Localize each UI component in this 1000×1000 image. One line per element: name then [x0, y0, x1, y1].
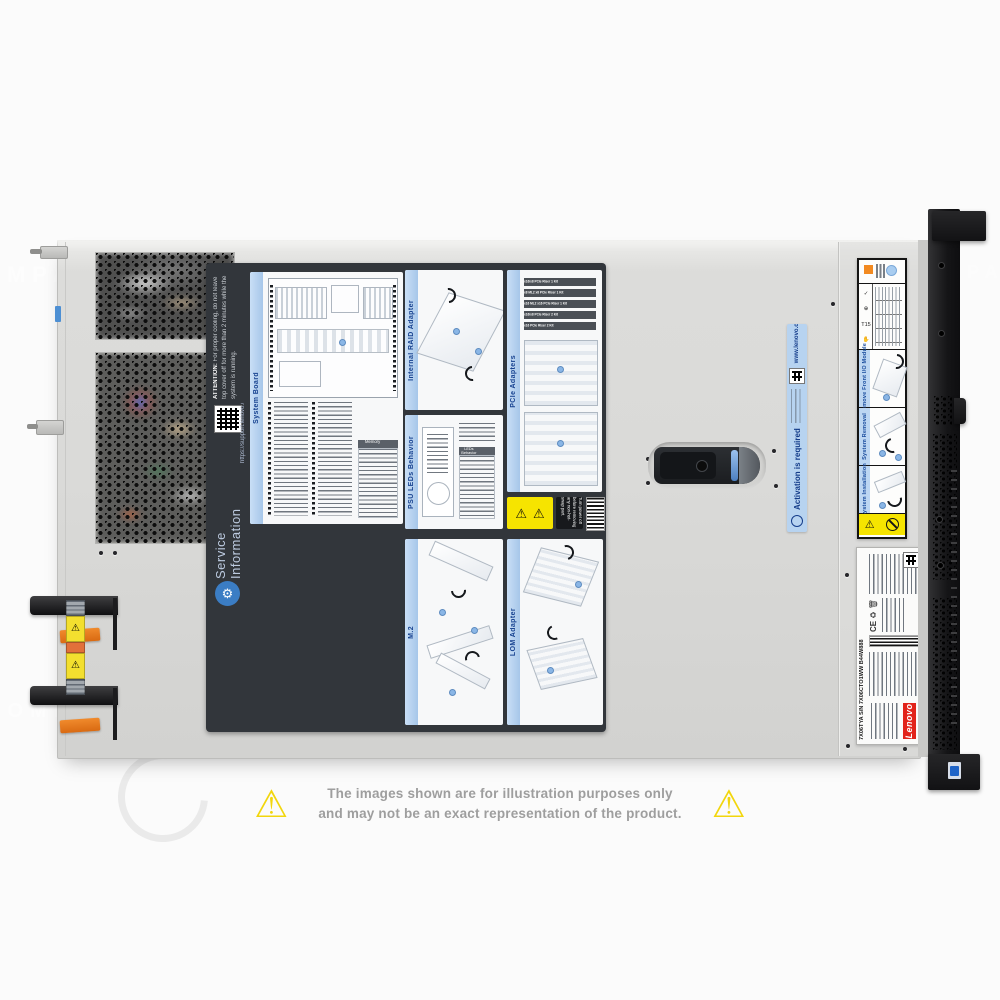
warning-triangle-icon: ⚠ [712, 785, 746, 823]
psu-fan-sketch [427, 482, 450, 505]
model-serial-text: 7X06TYA S/N 7X06CTO1WW B44W888 [858, 622, 864, 740]
activation-fine-print [791, 389, 803, 423]
touch-point-dot [895, 454, 902, 461]
cover-release-latch[interactable] [654, 447, 760, 484]
activation-qr-code [789, 368, 805, 384]
service-title-line2: Information [228, 439, 243, 579]
instruction-panel-system-installation: System Installation [859, 466, 905, 514]
instruction-panel-title: System Removal [862, 413, 868, 460]
blue-circle-legend-icon [886, 265, 897, 276]
touch-point-dot [557, 366, 564, 373]
rear-latch-pin [30, 249, 42, 254]
callout-ticks [270, 285, 273, 391]
panel-lom-adapter: LOM Adapter [507, 539, 603, 725]
psu-warning-label-strip: ⚠ ⚠ [66, 600, 85, 695]
disclaimer-line1: The images shown are for illustration pu… [318, 784, 681, 804]
instruction-panel-system-removal: System Removal [859, 408, 905, 466]
touch-point-dot [339, 339, 346, 346]
latch-blue-accent [731, 450, 738, 481]
psu-edge [113, 688, 117, 740]
bezel-screw [938, 330, 945, 337]
lift-warning-strip: ⚠ [859, 514, 905, 535]
cover-seam-highlight [839, 242, 840, 756]
memory-table-header: Memory [358, 440, 398, 448]
dimm-slots-sketch [363, 287, 393, 319]
panel-header: PSU LEDs Behavior [405, 415, 418, 529]
prohibition-icon [886, 518, 899, 531]
panel-header: M.2 [405, 539, 418, 725]
psu-led-table-header: LEDs Behavior [459, 447, 495, 455]
psu-led-table: LEDs Behavior [459, 447, 495, 519]
panel-psu-leds: PSU LEDs Behavior LEDs Behavior [405, 415, 503, 529]
screw-hole [846, 744, 850, 748]
psu-warning-label-orange [66, 642, 85, 653]
psu-edge [113, 598, 117, 650]
panel-internal-raid: Internal RAID Adapter [405, 270, 503, 410]
riser-diagram [524, 412, 598, 486]
psu-led-table-rows [459, 455, 495, 519]
touch-point-dot [883, 394, 890, 401]
panel-header: System Board [250, 272, 263, 524]
instruction-panel-header: Remove Front I/O Module [859, 350, 870, 407]
riser-kit-item: x16 ML2 x16 PCIe Riser 1 Kit [524, 300, 596, 308]
bezel-latch-bump[interactable] [954, 398, 966, 424]
arrow-icon [884, 489, 904, 509]
psu-release-tab-orange [60, 718, 101, 734]
psu-warning-label-yellow: ⚠ [66, 616, 85, 642]
panel-title: PCIe Adapters [510, 355, 517, 408]
warning-note-black: Turn power off before removing any non-h… [556, 497, 583, 529]
legend-ticks [312, 402, 315, 516]
instruction-panel-title: Remove Front I/O Module [862, 343, 868, 414]
system-sketch [873, 412, 906, 438]
psu-warning-label-yellow: ⚠ [66, 653, 85, 679]
disclaimer-banner: ⚠ The images shown are for illustration … [0, 784, 1000, 825]
screw-hole [99, 551, 103, 555]
rear-blue-clip [55, 306, 61, 322]
regulatory-fine-print [869, 652, 919, 696]
serial-barcode [869, 635, 919, 647]
touch-point-dot [453, 328, 460, 335]
rack-ear-top [932, 211, 986, 241]
riser-kit-item: x16/x8 PCIe Riser 2 Kit [524, 311, 596, 319]
instruction-panel-header: System Removal [859, 408, 870, 465]
service-tools-icon: ⚙ [215, 581, 240, 606]
latch-lock-screw[interactable] [696, 460, 708, 472]
torx-icon: T15 [861, 322, 870, 328]
touch-point-dot [557, 440, 564, 447]
arrow-icon [448, 580, 469, 601]
psu-unit-sketch [422, 427, 454, 517]
bezel-ribs [951, 470, 957, 730]
attention-title: ATTENTION: [213, 363, 219, 399]
orange-square-legend-icon [864, 265, 873, 274]
rear-latch-pin [27, 424, 38, 429]
attention-note: ATTENTION: For proper cooling, do not le… [212, 271, 246, 399]
pcie-slots-sketch [277, 329, 389, 353]
touch-point-dot [547, 667, 554, 674]
system-sketch [874, 471, 906, 493]
xeon-badge [948, 762, 961, 779]
system-board-diagram [268, 278, 398, 398]
touch-point-dot [475, 348, 482, 355]
touch-point-dot [471, 627, 478, 634]
psu-sketch-text [427, 434, 448, 474]
front-io-instruction-label: ✓ ⊕ T15 ✋ Remove Front I/O Module System… [857, 258, 907, 539]
m2-module-sketch [429, 541, 494, 582]
screw-hole [113, 551, 117, 555]
touch-point-dot [575, 581, 582, 588]
instruction-panel-remove-front-io: Remove Front I/O Module [859, 350, 905, 408]
service-info-title: Service Information [208, 439, 248, 579]
legend-ticks [268, 402, 271, 516]
riser-diagram [524, 340, 598, 406]
label-barcode [586, 497, 605, 531]
rear-latch-tab [40, 246, 68, 259]
panel-title: M.2 [408, 626, 415, 639]
warning-label-yellow: ⚠ ⚠ [507, 497, 553, 529]
warning-triangle-icon: ⚠ [254, 785, 288, 823]
touch-point-dot [879, 502, 886, 509]
service-qr-code [214, 405, 242, 433]
table-divider [872, 284, 873, 349]
screw-hole [646, 481, 650, 485]
chassis-front-edge [918, 240, 928, 757]
panel-title: PSU LEDs Behavior [408, 436, 415, 509]
checkmark-icon: ✓ [864, 291, 869, 297]
panel-title: System Board [253, 372, 260, 424]
screw-hole [831, 302, 835, 306]
activation-title: Activation is required [793, 428, 802, 510]
memory-table-rows [358, 448, 398, 518]
psu-led-notes [459, 423, 495, 443]
touch-point-dot [449, 689, 456, 696]
regulatory-fine-print [871, 703, 899, 739]
panel-system-board: System Board Memory [250, 272, 403, 524]
bezel-screw [938, 262, 945, 269]
panel-title: LOM Adapter [510, 608, 517, 656]
bezel-screw [937, 562, 944, 569]
bezel-perforations [934, 396, 952, 426]
panel-pcie-adapters: PCIe Adapters x16/x8 PCIe Riser 1 Kit x8… [507, 270, 602, 492]
warning-triangle-icon: ⚠ [515, 507, 527, 520]
legend-text-column [274, 402, 308, 516]
certification-marks: CE ♻ 🗑 [869, 598, 919, 632]
bezel-screw [936, 516, 943, 523]
instruction-panel-title: System Installation [862, 463, 868, 517]
lom-adapter-sketch [526, 638, 597, 690]
memory-table: Memory [358, 440, 398, 518]
screw-hole [772, 449, 776, 453]
psu-info-label [66, 679, 85, 695]
screw-hole [903, 747, 907, 751]
crossed-bin-icon: 🗑 [869, 599, 878, 609]
activation-required-label: Activation is required www.lenovo.com/ac… [787, 324, 807, 532]
screw-icon: ⊕ [864, 306, 869, 312]
screw-hole [774, 484, 778, 488]
component-sketch [279, 361, 321, 387]
activation-url: www.lenovo.com/activate [794, 324, 800, 363]
riser-kit-item: x16/x8 PCIe Riser 1 Kit [524, 278, 596, 286]
screw-table-section: ✓ ⊕ T15 ✋ [859, 284, 905, 350]
m2-module-sketch [426, 625, 493, 659]
callout-ticks [393, 285, 396, 391]
panel-header: PCIe Adapters [507, 270, 520, 492]
rear-latch-tab [36, 420, 64, 435]
legend-section [859, 260, 905, 284]
touch-point-dot [439, 609, 446, 616]
lenovo-logo: Lenovo [903, 703, 916, 739]
ce-mark: CE [869, 621, 878, 632]
panel-header: Internal RAID Adapter [405, 270, 418, 410]
instruction-panel-header: System Installation [859, 466, 870, 513]
xeon-badge-inner [950, 766, 959, 776]
psu-info-label [66, 600, 85, 616]
table-description-column [875, 287, 902, 346]
riser-kit-item: x16 PCIe Riser 2 Kit [524, 322, 596, 330]
activation-strip-content: Activation is required www.lenovo.com/ac… [787, 324, 807, 532]
warning-note-text: Turn power off before removing any non-h… [556, 497, 583, 528]
service-information-label: ATTENTION: For proper cooling, do not le… [206, 263, 606, 732]
disclaimer-text: The images shown are for illustration pu… [318, 784, 681, 825]
panel-m2: M.2 [405, 539, 503, 725]
m2-module-sketch [435, 653, 490, 690]
cert-fine-print [882, 598, 904, 632]
product-photo: COMPAN COMPAN COMPAN COMPAN COMPAN COMPA… [0, 0, 1000, 1000]
warning-triangle-icon: ⚠ [533, 507, 545, 520]
recycle-icon: ♻ [869, 611, 878, 618]
cpu-socket-sketch [331, 285, 359, 313]
touch-point-dot [879, 450, 886, 457]
dimm-slots-sketch [275, 287, 327, 319]
clock-icon [791, 515, 803, 527]
panel-title: Internal RAID Adapter [408, 300, 415, 381]
regulatory-qr-code [903, 552, 919, 568]
riser-kit-item: x8 ML2 x8 PCIe Riser 1 Kit [524, 289, 596, 297]
table-icon-column: ✓ ⊕ T15 ✋ [860, 286, 872, 348]
screw-hole [845, 573, 849, 577]
panel-header: LOM Adapter [507, 539, 520, 725]
model-serial-line: 7X06TYA S/N 7X06CTO1WW B44W888 [858, 550, 866, 740]
legend-text [877, 264, 885, 278]
warning-triangle-icon: ⚠ [865, 518, 875, 531]
service-title-line1: Service [213, 439, 228, 579]
disclaimer-line2: and may not be an exact representation o… [318, 804, 681, 824]
regulatory-label-content: 7X06TYA S/N 7X06CTO1WW B44W888 Lenovo CE… [857, 548, 927, 744]
riser-kit-list: x16/x8 PCIe Riser 1 Kit x8 ML2 x8 PCIe R… [524, 278, 596, 333]
chassis-top-edge-highlight [57, 240, 919, 251]
legend-text-column [318, 402, 352, 516]
arrow-icon [545, 623, 564, 642]
